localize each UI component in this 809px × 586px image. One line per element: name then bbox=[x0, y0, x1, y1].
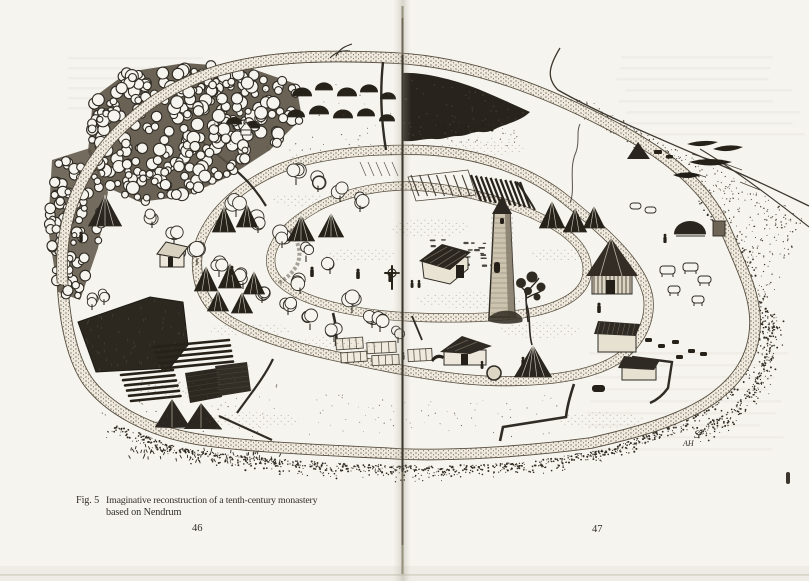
svg-text:46: 46 bbox=[192, 523, 203, 534]
svg-text:AH: AH bbox=[682, 439, 695, 448]
svg-text:Imaginative reconstruction of: Imaginative reconstruction of a tenth-ce… bbox=[106, 495, 318, 506]
svg-text:Fig. 5: Fig. 5 bbox=[76, 495, 99, 506]
svg-text:Sˤ: Sˤ bbox=[694, 427, 704, 441]
svg-text:47: 47 bbox=[592, 524, 603, 535]
svg-text:based on Nendrum: based on Nendrum bbox=[106, 507, 182, 518]
